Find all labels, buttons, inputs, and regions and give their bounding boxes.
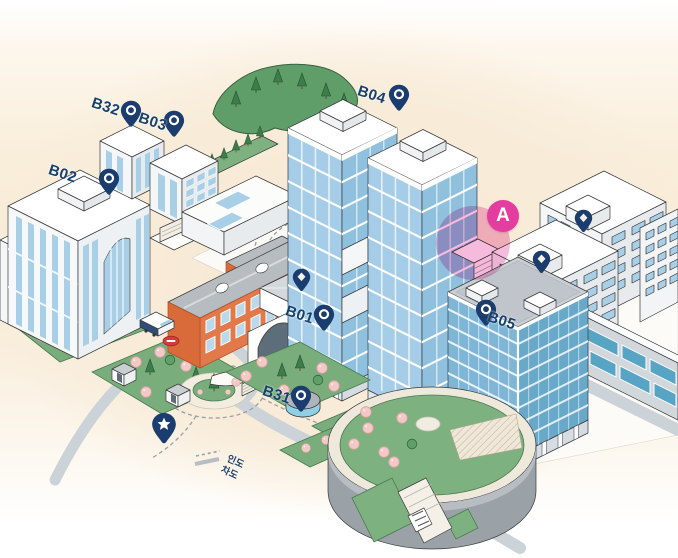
pin-star[interactable] <box>151 412 177 451</box>
pin-east-building[interactable] <box>532 250 551 280</box>
building-far-east <box>640 209 678 322</box>
pin-b01[interactable] <box>313 304 335 338</box>
pin-b04[interactable] <box>388 84 410 118</box>
legend-solid-line <box>195 459 219 464</box>
pin-b31[interactable] <box>290 385 312 419</box>
building-drum <box>328 387 536 549</box>
zone-a-badge[interactable]: A <box>487 200 519 232</box>
campus-map: A B02 B32 B03 B04 B01 B05 B31 인도 차도 <box>0 0 678 558</box>
pin-b02[interactable] <box>98 168 120 202</box>
legend-dashed-line <box>196 451 220 456</box>
pin-northeast-building[interactable] <box>574 209 593 239</box>
map-legend: 인도 차도 <box>190 446 270 490</box>
pin-courtyard[interactable] <box>292 268 311 298</box>
bus-stop-icon <box>163 336 179 346</box>
map-illustration <box>0 0 678 558</box>
